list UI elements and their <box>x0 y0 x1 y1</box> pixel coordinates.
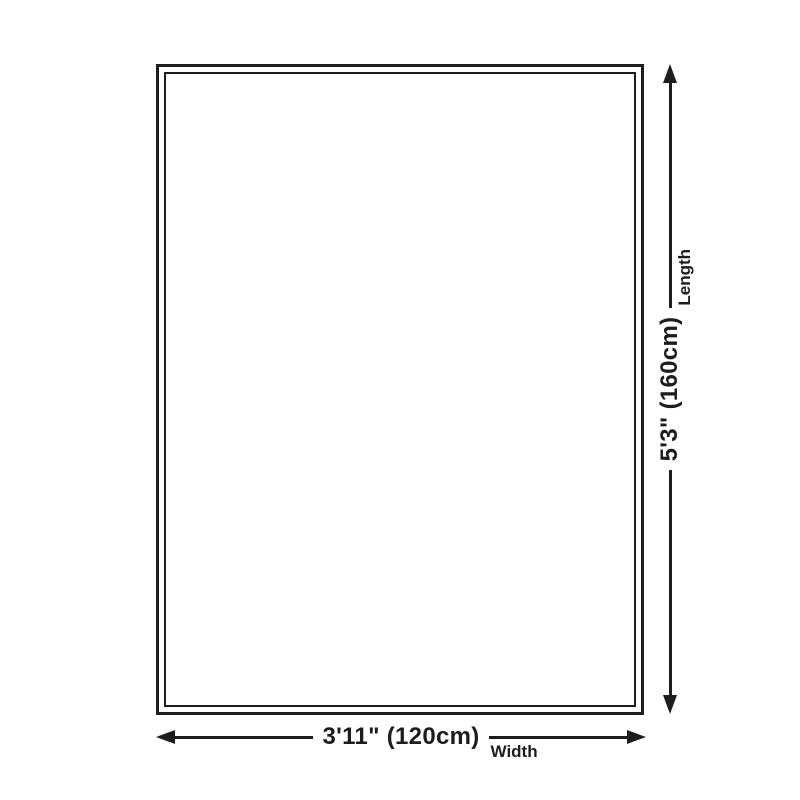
width-dimension-line-left <box>175 736 313 739</box>
size-diagram: 3'11" (120cm) Width 5'3" (160cm) Length <box>0 0 800 800</box>
length-dimension: 5'3" (160cm) Length <box>640 64 700 714</box>
rug-outline-inner <box>164 72 636 707</box>
width-label: Width <box>491 743 538 760</box>
width-value: 3'11" (120cm) <box>322 723 479 751</box>
width-dimension: 3'11" (120cm) Width <box>156 707 646 767</box>
arrow-up-icon <box>663 64 677 83</box>
length-label: Length <box>676 249 693 306</box>
arrow-down-icon <box>663 695 677 714</box>
width-dimension-line-right: Width <box>489 736 627 739</box>
length-dimension-line-bottom <box>669 470 672 695</box>
length-value: 5'3" (160cm) <box>656 317 684 462</box>
rug-outline <box>156 64 644 715</box>
arrow-right-icon <box>627 730 646 744</box>
length-dimension-line-top: Length <box>669 83 672 308</box>
arrow-left-icon <box>156 730 175 744</box>
